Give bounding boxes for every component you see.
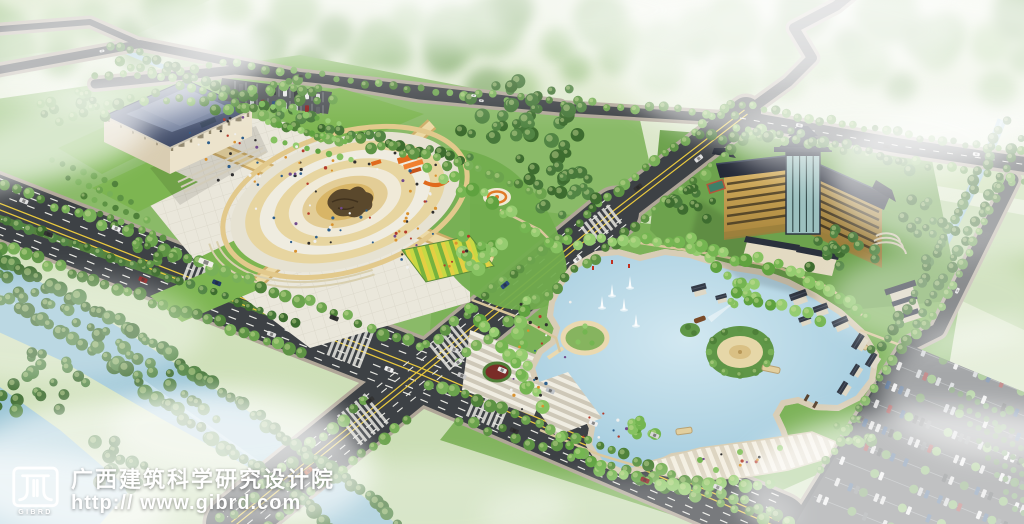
site-aerial-rendering: GIBRD 广西建筑科学研究设计院 http:// www.gibrd.com (0, 0, 1024, 524)
rendering-canvas (0, 0, 1024, 524)
watermark: GIBRD 广西建筑科学研究设计院 http:// www.gibrd.com (12, 466, 335, 516)
gibrd-logo-glyph (20, 476, 52, 500)
watermark-org-name: 广西建筑科学研究设计院 (71, 467, 335, 492)
gibrd-logo: GIBRD (12, 466, 59, 516)
watermark-url: http:// www.gibrd.com (71, 492, 335, 515)
gibrd-logo-text: GIBRD (18, 509, 52, 516)
